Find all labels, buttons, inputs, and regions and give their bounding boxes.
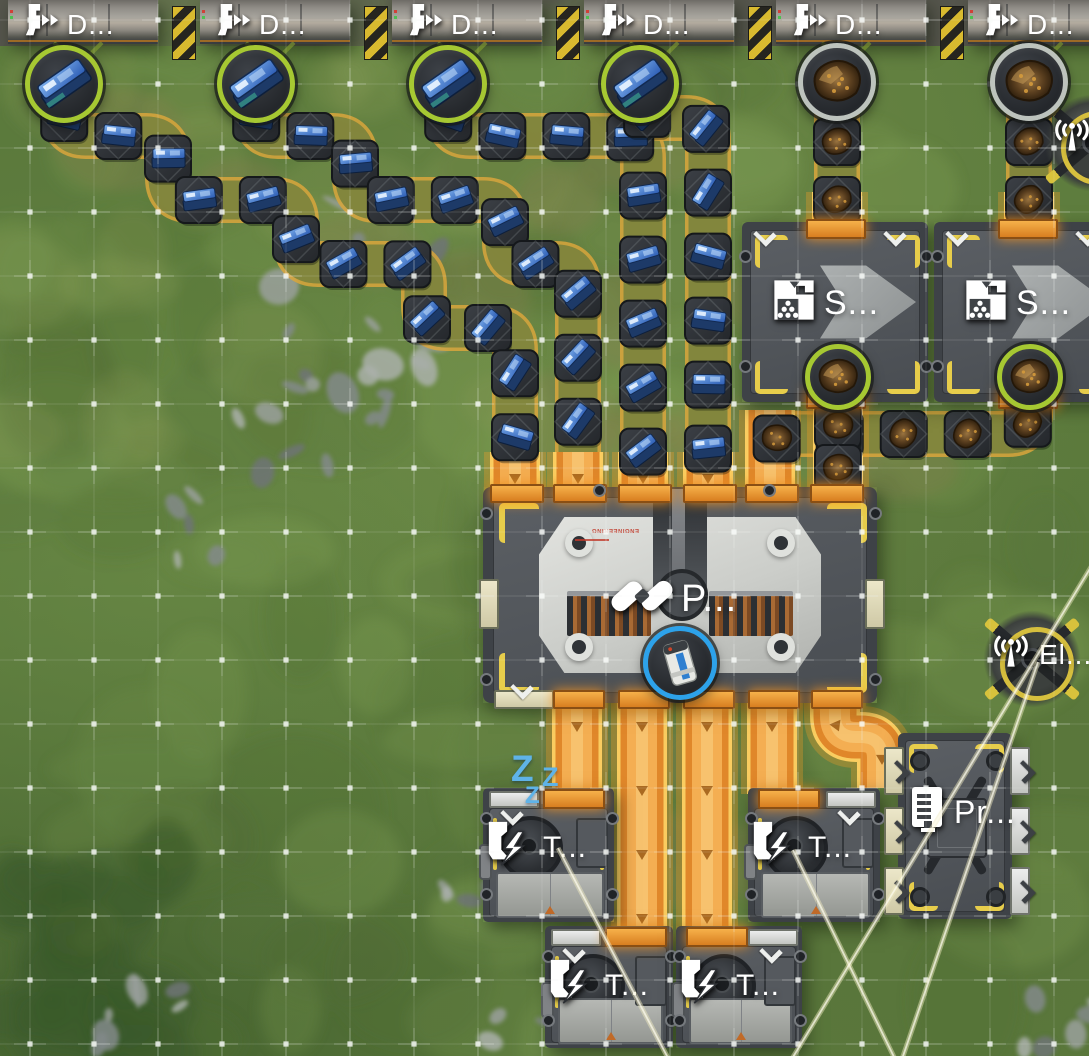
press-caption: P... [609, 563, 737, 634]
turbine-machine[interactable]: T... [545, 926, 673, 1048]
belt-item-pallet [332, 141, 379, 190]
blue-circuit-item [691, 308, 726, 331]
conveyor-belt[interactable] [835, 700, 882, 788]
printer-label: Pr... [954, 796, 1016, 828]
input-port [618, 484, 672, 503]
corner-bracket [909, 882, 938, 911]
sleep-z-icon: Z [542, 764, 559, 791]
conveyor-belt[interactable] [448, 92, 643, 490]
turbine-panel [558, 998, 663, 1044]
left-port [884, 747, 904, 795]
belt-item-pallet [945, 411, 992, 460]
blue-circuit-item [325, 247, 363, 280]
arm-joint [910, 751, 930, 771]
output-port [553, 690, 605, 709]
bolt-detail [606, 812, 619, 825]
power-beam-core [793, 850, 915, 1056]
turbine-fan [692, 954, 756, 1018]
blue-circuit-item [625, 245, 662, 272]
turbine-label: T... [605, 971, 649, 1001]
bolt-detail [665, 1014, 678, 1027]
smelter-machine[interactable]: S... [742, 222, 928, 402]
bracket-bar [866, 818, 870, 870]
grid-ticks [14, 4, 1070, 1056]
belt-direction-arrow [571, 722, 583, 732]
blue-circuit-item [550, 125, 585, 147]
output-chevron [759, 940, 783, 964]
conveyor-belt[interactable] [835, 700, 882, 788]
power-pole[interactable] [1028, 78, 1089, 208]
belt-item-pallet [683, 106, 730, 155]
belt-direction-arrow [636, 914, 648, 924]
output-port [494, 690, 554, 709]
press-body [539, 517, 821, 673]
port-chevron [886, 880, 910, 904]
belt-item-pallet [368, 177, 415, 226]
smelter-label: S... [824, 286, 879, 320]
side-cylinder [479, 844, 492, 880]
turbine-icon [748, 820, 802, 875]
pole-icon [989, 632, 1033, 677]
corner-bracket [499, 653, 539, 693]
power-beam [700, 470, 1089, 1056]
conveyor-belt[interactable] [770, 404, 1030, 490]
ore-item [1008, 404, 1046, 442]
blue-circuit-item [611, 58, 668, 108]
blue-circuit-item [430, 103, 467, 132]
belt-item-pallet [685, 234, 732, 283]
belt-item-pallet [685, 362, 732, 411]
ore-item [948, 414, 986, 452]
corner-bracket [755, 235, 788, 268]
bolt-detail [763, 484, 776, 497]
bolt-detail [920, 360, 933, 373]
pole-arm [1045, 101, 1089, 185]
blue-circuit-item [561, 402, 596, 440]
belt-item-pallet [240, 177, 287, 226]
arm-strut [922, 775, 987, 876]
press-piston [653, 489, 707, 589]
power-beam-core [558, 848, 690, 1056]
output-port [998, 389, 1058, 409]
pole-icon [1050, 116, 1089, 161]
belt-item-pallet [145, 136, 192, 185]
bolt-detail [745, 888, 758, 901]
pole-ring [1000, 627, 1074, 701]
bolt-detail [542, 1014, 555, 1027]
arm-joint [986, 751, 1006, 771]
power-pole[interactable]: El... [967, 594, 1089, 724]
smelter-caption: S... [962, 276, 1071, 329]
output-item-badge [798, 43, 876, 121]
belt-direction-arrow [572, 474, 584, 484]
ore-item [1011, 360, 1048, 393]
printer-icon [908, 785, 948, 838]
blue-circuit-item [239, 106, 275, 130]
body-bolt [565, 529, 593, 557]
side-rack [842, 818, 874, 868]
body-bolt [767, 633, 795, 661]
belt-item-pallet [432, 177, 479, 226]
blue-circuit-item [101, 124, 136, 146]
conveyor-belt[interactable] [835, 700, 882, 788]
right-port [1010, 867, 1030, 915]
bolt-detail [739, 360, 752, 373]
ore-item [822, 417, 857, 450]
corner-bracket [947, 235, 980, 268]
belt-direction-arrow [637, 474, 649, 484]
blue-circuit-item [691, 173, 725, 211]
input-port [683, 484, 737, 503]
blue-circuit-item [691, 437, 726, 459]
turbine-caption: T... [483, 820, 587, 875]
arm-joint [910, 887, 930, 907]
belt-direction-arrow [702, 474, 714, 484]
output-item-badge [643, 626, 717, 700]
port-chevron [1012, 820, 1036, 844]
output-chevron [837, 802, 861, 826]
blue-circuit-item [614, 127, 648, 147]
port-chevron [886, 760, 910, 784]
side-cylinder [541, 982, 554, 1018]
turbine-machine[interactable]: T... [676, 926, 802, 1048]
side-rack [576, 818, 608, 868]
belt-item-pallet [492, 350, 539, 399]
belt-direction-arrow [701, 786, 713, 796]
blue-circuit-item [629, 95, 666, 132]
press-heatsink [567, 591, 651, 636]
conveyor-belt[interactable] [64, 92, 515, 490]
turbine-machine[interactable]: T... [748, 788, 880, 922]
belt-item-pallet [273, 216, 320, 265]
conveyor-belt[interactable] [770, 404, 1030, 490]
turbine-caption: T... [545, 958, 649, 1013]
center-plate [927, 798, 987, 858]
input-port [686, 927, 748, 947]
belt-item-pallet [815, 445, 862, 494]
output-item-badge [990, 43, 1068, 121]
ore-item [823, 454, 853, 481]
bolt-detail [745, 812, 758, 825]
belt-direction-arrow [701, 914, 713, 924]
belt-item-pallet [814, 119, 861, 168]
input-port [806, 219, 866, 239]
blue-circuit-item [419, 58, 476, 108]
belt-item-pallet [482, 199, 529, 248]
output-port [806, 389, 866, 409]
bracket-bar [659, 956, 663, 1008]
blue-circuit-item [436, 185, 473, 214]
power-beam [558, 848, 690, 1056]
blue-circuit-item [277, 224, 315, 254]
blue-circuit-item [517, 246, 555, 280]
input-chevron [1075, 223, 1089, 247]
input-port [810, 484, 864, 503]
turbine-fan [764, 816, 828, 880]
output-chevron [562, 940, 586, 964]
input-chevron [945, 223, 969, 247]
bolt-detail [931, 360, 944, 373]
belt-direction-arrow [509, 474, 521, 484]
corner-bracket [975, 744, 1004, 773]
right-port [1010, 747, 1030, 795]
game-viewport: D...D...D...D...D...D...S...S...ENGINEER… [0, 0, 1089, 1056]
belt-item-pallet [817, 411, 864, 460]
conveyor-belt[interactable] [64, 92, 515, 490]
fine-print: ENGINEERING [569, 525, 639, 533]
output-item-badge [217, 45, 295, 123]
conveyor-belt[interactable] [448, 92, 643, 490]
input-port [490, 484, 544, 503]
output-item-badge [805, 344, 871, 410]
blue-circuit-item [294, 125, 328, 145]
power-beam-core [700, 470, 1089, 1056]
bolt-detail [665, 950, 678, 963]
belt-item-pallet [555, 271, 602, 320]
terrain-layer [0, 0, 1089, 1056]
smelter-chute [820, 254, 916, 350]
belt-item-pallet [1006, 177, 1053, 226]
conveyor-belt[interactable] [770, 404, 1030, 490]
bolt-detail [869, 673, 882, 686]
conveyor-belt[interactable] [448, 92, 643, 490]
output-port [618, 690, 670, 709]
belt-item-pallet [620, 301, 667, 350]
belt-item-pallet [465, 305, 512, 354]
blue-circuit-item [227, 58, 284, 108]
blue-circuit-item [373, 187, 409, 212]
bracket-bar [686, 956, 690, 1008]
turbine-caption: T... [748, 820, 852, 875]
bolt-detail [480, 812, 493, 825]
ore-item [760, 423, 793, 453]
smelter-chute [1012, 254, 1089, 350]
output-item-badge [997, 344, 1063, 410]
belt-direction-arrow [636, 850, 648, 860]
corner-bracket [499, 503, 539, 543]
belt-item-pallet [287, 113, 334, 162]
fine-print-text: ENGINEERING [591, 527, 639, 533]
side-port [479, 579, 499, 629]
turbine-panel [689, 998, 792, 1044]
corner-bracket [755, 361, 788, 394]
bracket-bar [788, 956, 792, 1008]
belt-item-pallet [41, 95, 88, 144]
bolt-detail [480, 673, 493, 686]
output-chevron [510, 676, 534, 700]
belt-item-pallet [754, 415, 801, 464]
corner-bracket [827, 653, 867, 693]
conveyor-belt[interactable] [256, 92, 578, 490]
fine-print-mark [575, 539, 609, 541]
bolt-detail [931, 250, 944, 263]
blue-circuit-item [626, 183, 662, 207]
bolt-detail [673, 1014, 686, 1027]
turbine-label: T... [543, 833, 587, 863]
blue-circuit-item [338, 152, 373, 174]
output-port [811, 690, 863, 709]
belt-item-pallet [620, 173, 667, 222]
blue-circuit-item [486, 206, 524, 238]
pole-ring [1061, 111, 1089, 185]
belt-direction-arrow [636, 722, 648, 732]
belt-item-pallet [233, 95, 280, 144]
blue-circuit-item [408, 300, 445, 336]
output-port [683, 690, 735, 709]
ore-item [819, 360, 856, 393]
bolt-detail [606, 888, 619, 901]
input-port [605, 927, 667, 947]
bolt-detail [794, 950, 807, 963]
side-rack [635, 956, 667, 1006]
belt-direction-arrow [876, 755, 888, 765]
belt-item-pallet [404, 296, 451, 345]
conveyor-belt[interactable] [640, 90, 708, 490]
blue-circuit-item [182, 188, 217, 211]
corner-bracket [909, 744, 938, 773]
press-machine[interactable]: ENGINEERINGP... [483, 487, 877, 703]
belt-item-pallet [685, 426, 732, 475]
conveyor-belt[interactable] [256, 92, 578, 490]
input-port [553, 484, 607, 503]
pole-hub [1021, 648, 1043, 670]
port-chevron [1012, 880, 1036, 904]
port-chevron [886, 820, 910, 844]
blue-circuit-item [470, 309, 506, 346]
smelter-machine[interactable]: S... [934, 222, 1089, 402]
belt-item-pallet [555, 335, 602, 384]
printer-caption: Pr... [908, 785, 1016, 838]
corner-bracket [1079, 235, 1089, 268]
turbine-icon [483, 820, 537, 875]
blue-circuit-item [47, 105, 83, 131]
bracket-bar [758, 818, 762, 870]
bracket-bar [493, 818, 497, 870]
power-beam-core [888, 662, 1038, 1056]
smelter-caption: S... [770, 276, 879, 329]
belt-item-pallet [620, 365, 667, 414]
bolt-detail [739, 250, 752, 263]
corner-bracket [887, 235, 920, 268]
conveyor-belt[interactable] [640, 90, 708, 490]
blue-circuit-item [35, 58, 92, 108]
right-port [1010, 807, 1030, 855]
belt-direction-arrow [832, 428, 844, 438]
corner-bracket [975, 882, 1004, 911]
turbine-caption: T... [676, 958, 780, 1013]
conveyor-belt[interactable] [64, 92, 515, 490]
ore-item [1010, 123, 1047, 159]
turbine-icon [676, 958, 730, 1013]
belt-item-pallet [176, 177, 223, 226]
side-cylinder [744, 844, 757, 880]
top-structures-band [0, 0, 1089, 46]
press-hub [656, 569, 708, 621]
pole-arm [984, 617, 1081, 701]
corner-bracket [947, 361, 980, 394]
corner-bracket [887, 361, 920, 394]
turbine-fan [561, 954, 625, 1018]
turbine-panel [761, 872, 870, 918]
conveyor-belt[interactable] [835, 700, 882, 788]
conveyor-belt[interactable] [640, 90, 708, 490]
side-port [865, 579, 885, 629]
belt-item-pallet [620, 429, 667, 478]
side-cylinder [672, 982, 685, 1018]
belt-item-pallet [320, 241, 367, 290]
corner-bracket [1079, 361, 1089, 394]
belt-item-pallet [1006, 119, 1053, 168]
output-port [748, 690, 800, 709]
conveyor-belt[interactable] [835, 700, 882, 788]
blue-circuit-item [498, 354, 532, 392]
belt-direction-arrow [636, 786, 648, 796]
bolt-detail [542, 950, 555, 963]
belt-item-pallet [384, 241, 431, 290]
blue-circuit-item [624, 433, 662, 468]
blue-circuit-item [559, 275, 596, 311]
belt-direction-arrow [701, 722, 713, 732]
pole-arm [984, 617, 1081, 701]
belt-item-pallet [607, 114, 654, 163]
bolt-detail [673, 950, 686, 963]
belt-direction-arrow [764, 432, 776, 442]
conveyor-belt[interactable] [256, 92, 578, 490]
power-pole-caption: El... [989, 632, 1089, 677]
output-port [748, 929, 798, 946]
body-bolt [565, 633, 593, 661]
ore-item [884, 414, 921, 452]
grid-lines [0, 0, 1089, 1056]
smelter-icon [770, 276, 818, 329]
input-port [745, 484, 799, 503]
power-beam [888, 662, 1038, 1056]
left-port [884, 807, 904, 855]
belt-item-pallet [95, 113, 142, 162]
ore-item [820, 126, 854, 157]
pole-base [983, 610, 1081, 708]
grid-overlay [0, 0, 1089, 1056]
bolt-detail [920, 250, 933, 263]
arm-joint [986, 887, 1006, 907]
press-icon [609, 563, 675, 634]
item-badges-layer [0, 0, 1089, 1056]
blue-circuit-item [245, 186, 282, 213]
power-pole-caption [1050, 116, 1089, 161]
grid-dots [27, 17, 1056, 1046]
blue-circuit-item [624, 370, 662, 403]
blue-circuit-item [560, 338, 596, 375]
press-heatsink [709, 591, 793, 636]
belt-item-pallet [512, 241, 559, 290]
blue-circuit-item [152, 148, 185, 168]
belt-item-pallet [1005, 401, 1052, 450]
belt-direction-arrow [829, 720, 844, 734]
output-item-badge [25, 45, 103, 123]
turbine-label: T... [808, 833, 852, 863]
bolt-detail [869, 507, 882, 520]
output-item-badge [409, 45, 487, 123]
belt-item-pallet [685, 170, 732, 219]
battery-item [663, 640, 698, 687]
turbine-label: T... [736, 971, 780, 1001]
printer-machine[interactable]: Pr... [898, 733, 1012, 919]
bolt-detail [872, 888, 885, 901]
turbine-icon [545, 958, 599, 1013]
turbine-fan [499, 816, 563, 880]
blue-circuit-item [690, 243, 727, 270]
input-chevron [753, 223, 777, 247]
